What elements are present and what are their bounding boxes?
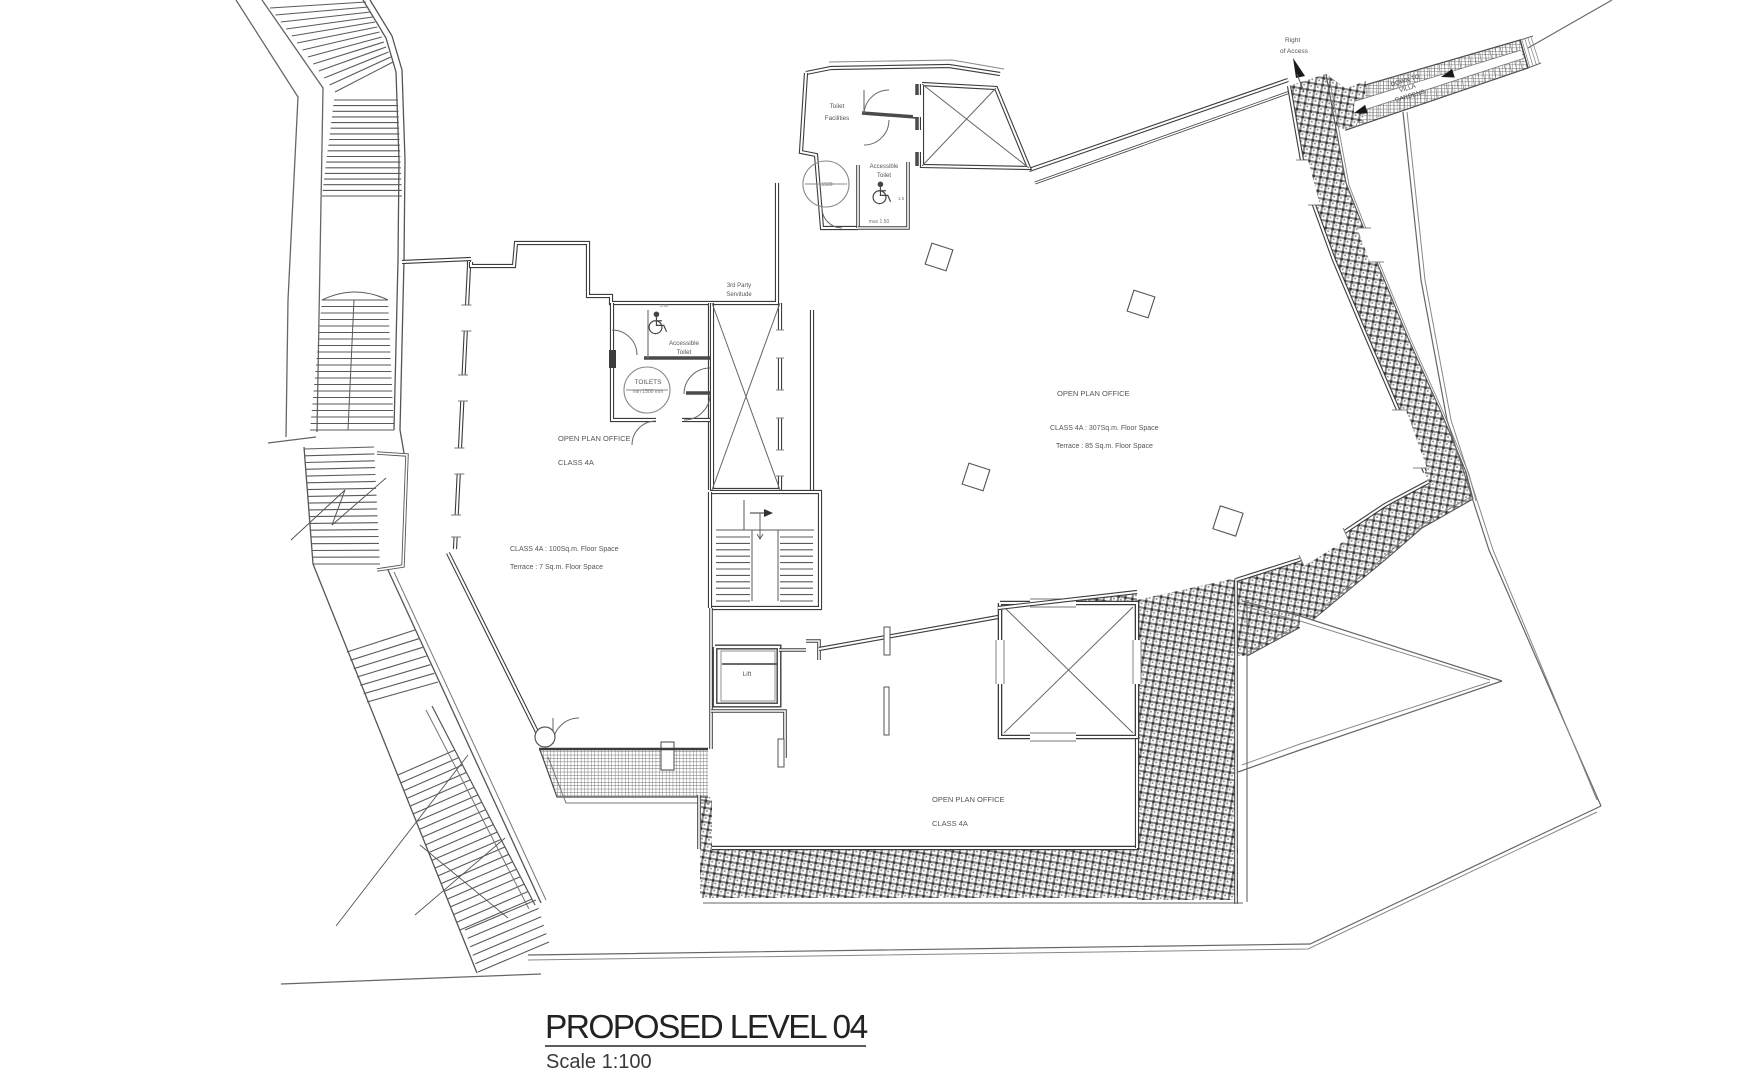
- svg-text:min 1500 mm: min 1500 mm: [633, 389, 663, 395]
- svg-text:of Access: of Access: [1280, 48, 1309, 55]
- svg-text:Right: Right: [1285, 37, 1300, 44]
- svg-text:Scale 1:100: Scale 1:100: [546, 1051, 652, 1073]
- svg-text:1.5: 1.5: [898, 196, 905, 201]
- svg-text:PROPOSED LEVEL 04: PROPOSED LEVEL 04: [545, 1009, 868, 1046]
- svg-text:Terrace : 85 Sq.m. Floor Space: Terrace : 85 Sq.m. Floor Space: [1056, 443, 1153, 450]
- svg-text:CLASS 4A: CLASS 4A: [932, 819, 968, 828]
- svg-text:Accessible: Accessible: [870, 164, 899, 170]
- svg-text:1500: 1500: [821, 182, 832, 188]
- svg-text:max 1.50: max 1.50: [869, 219, 890, 225]
- svg-text:OPEN PLAN OFFICE: OPEN PLAN OFFICE: [1057, 389, 1130, 398]
- svg-text:Facilities: Facilities: [825, 115, 850, 122]
- svg-text:Toilet: Toilet: [830, 103, 845, 110]
- svg-text:Servitude: Servitude: [726, 292, 752, 298]
- svg-text:OPEN PLAN OFFICE: OPEN PLAN OFFICE: [932, 795, 1005, 804]
- svg-text:3rd Party: 3rd Party: [727, 283, 751, 289]
- svg-text:CLASS 4A : 307Sq.m. Floor Spac: CLASS 4A : 307Sq.m. Floor Space: [1050, 425, 1159, 432]
- svg-text:Lift: Lift: [743, 671, 752, 678]
- svg-text:Terrace : 7 Sq.m. Floor Space: Terrace : 7 Sq.m. Floor Space: [510, 564, 603, 571]
- svg-text:Toilet: Toilet: [877, 173, 891, 179]
- svg-text:CLASS 4A: CLASS 4A: [558, 458, 594, 467]
- svg-text:TOILETS: TOILETS: [635, 379, 663, 386]
- svg-text:1.50: 1.50: [660, 303, 669, 308]
- svg-text:CLASS 4A : 100Sq.m. Floor Spac: CLASS 4A : 100Sq.m. Floor Space: [510, 546, 619, 553]
- svg-text:Toilet: Toilet: [677, 349, 692, 356]
- svg-text:Accessible: Accessible: [669, 340, 700, 347]
- svg-text:OPEN PLAN OFFICE: OPEN PLAN OFFICE: [558, 434, 631, 443]
